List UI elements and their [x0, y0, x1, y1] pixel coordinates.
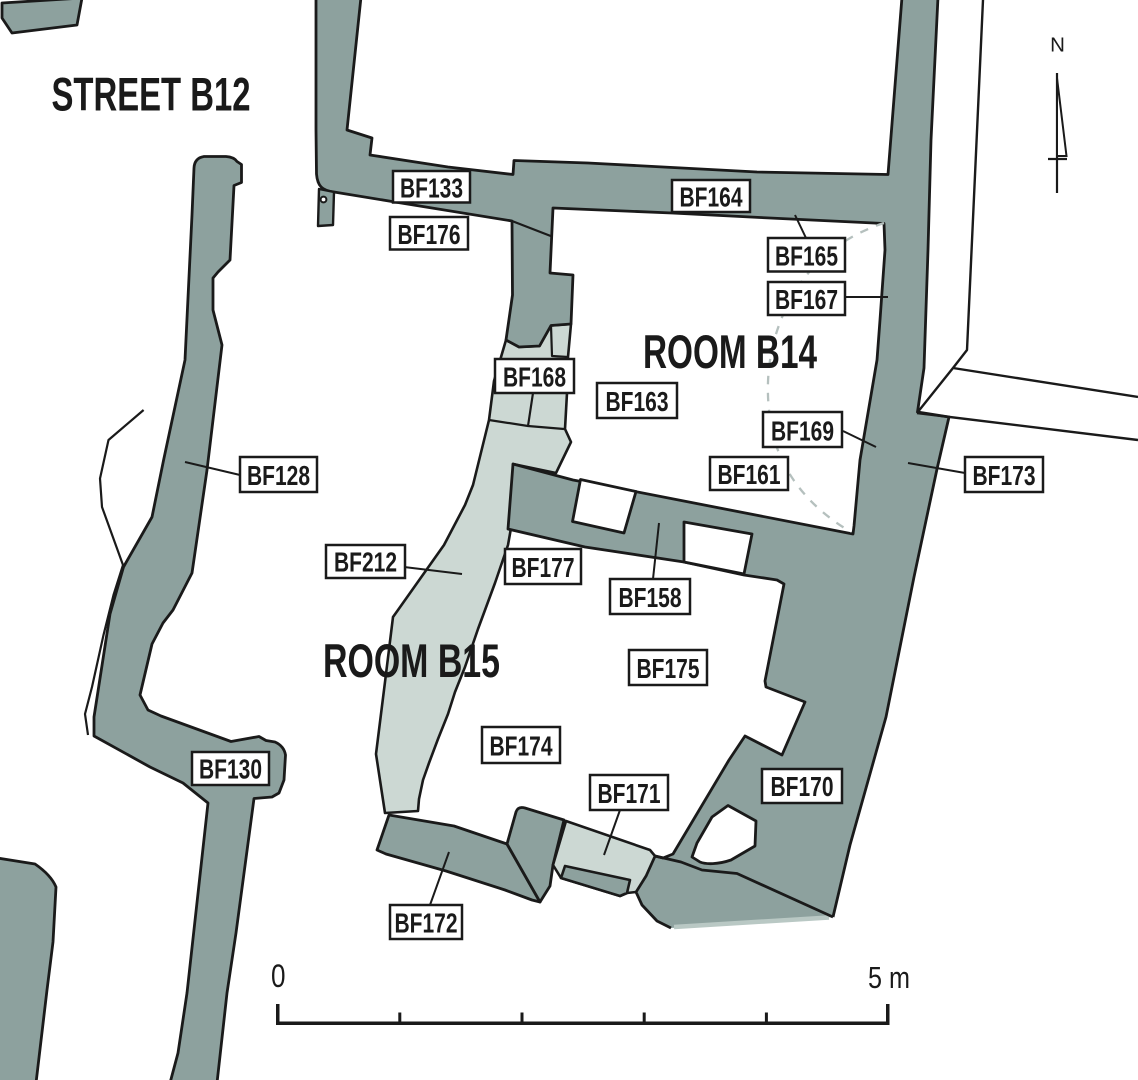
svg-text:ROOM B15: ROOM B15 — [323, 634, 500, 687]
svg-text:BF170: BF170 — [771, 771, 834, 802]
svg-text:BF177: BF177 — [512, 552, 575, 583]
svg-text:BF128: BF128 — [247, 460, 310, 491]
svg-text:ROOM B14: ROOM B14 — [643, 325, 817, 378]
svg-text:BF175: BF175 — [637, 653, 700, 684]
svg-text:BF176: BF176 — [398, 219, 461, 250]
svg-text:BF164: BF164 — [680, 182, 743, 213]
svg-text:BF161: BF161 — [718, 459, 781, 490]
svg-text:N: N — [1050, 34, 1065, 57]
svg-text:BF168: BF168 — [503, 362, 566, 393]
svg-text:0: 0 — [271, 958, 286, 994]
svg-text:BF158: BF158 — [619, 582, 682, 613]
svg-text:BF174: BF174 — [490, 731, 553, 762]
svg-text:BF212: BF212 — [334, 547, 397, 578]
svg-text:BF169: BF169 — [771, 416, 834, 447]
svg-text:5 m: 5 m — [868, 960, 910, 995]
svg-text:BF165: BF165 — [775, 241, 838, 272]
svg-text:BF163: BF163 — [606, 386, 669, 417]
svg-text:STREET B12: STREET B12 — [52, 67, 251, 120]
svg-text:BF130: BF130 — [199, 754, 262, 785]
svg-text:BF172: BF172 — [395, 908, 458, 939]
svg-text:BF173: BF173 — [973, 460, 1036, 491]
svg-text:BF171: BF171 — [598, 778, 661, 809]
svg-text:BF133: BF133 — [400, 173, 463, 204]
svg-text:BF167: BF167 — [775, 284, 838, 315]
